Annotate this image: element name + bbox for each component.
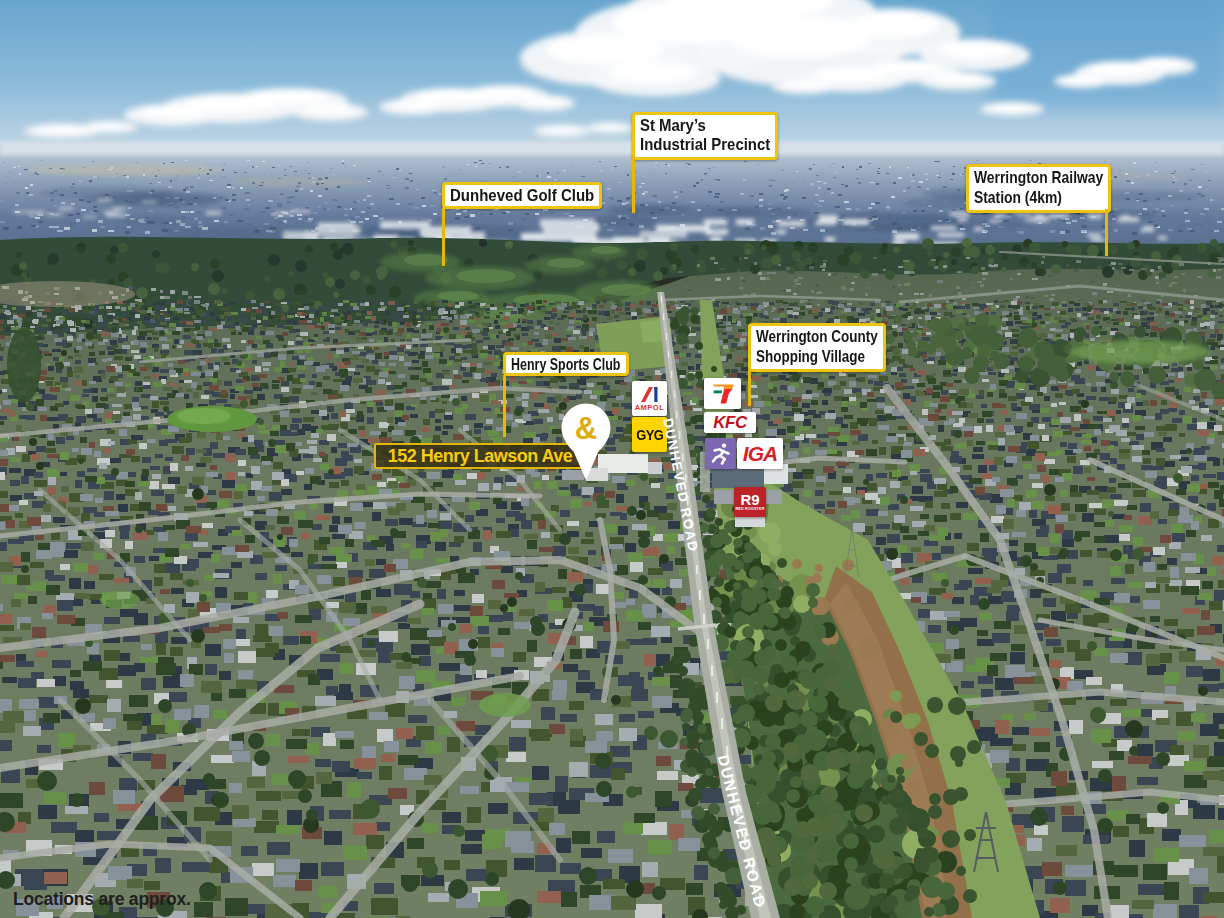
svg-text:&: & xyxy=(575,411,597,446)
